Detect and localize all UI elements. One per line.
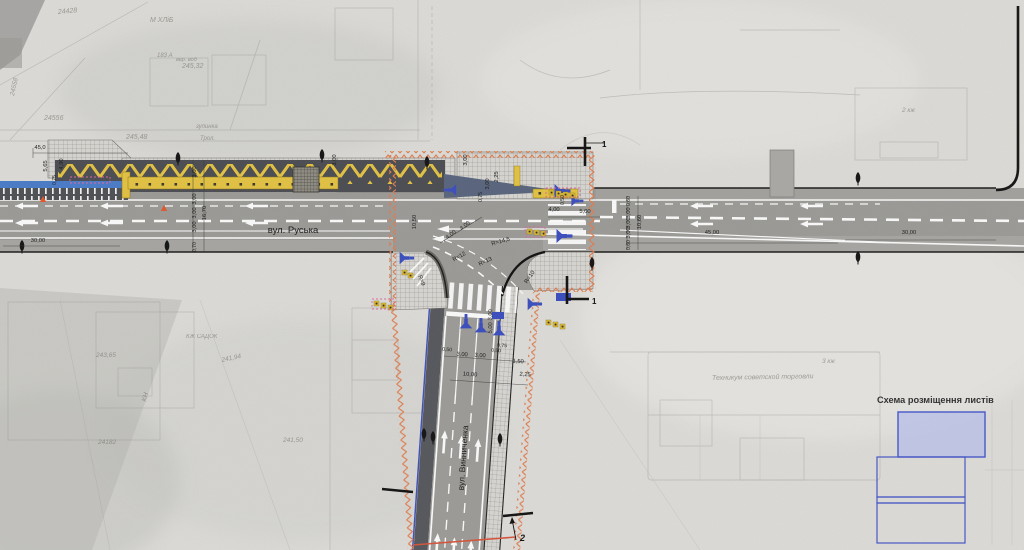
paper-grain xyxy=(0,0,1024,550)
plan-sheet: М ХЛіБ24428245,32183 Авер. вод2455824556… xyxy=(0,0,1024,550)
plan-canvas: М ХЛіБ24428245,32183 Авер. вод2455824556… xyxy=(0,0,1024,550)
